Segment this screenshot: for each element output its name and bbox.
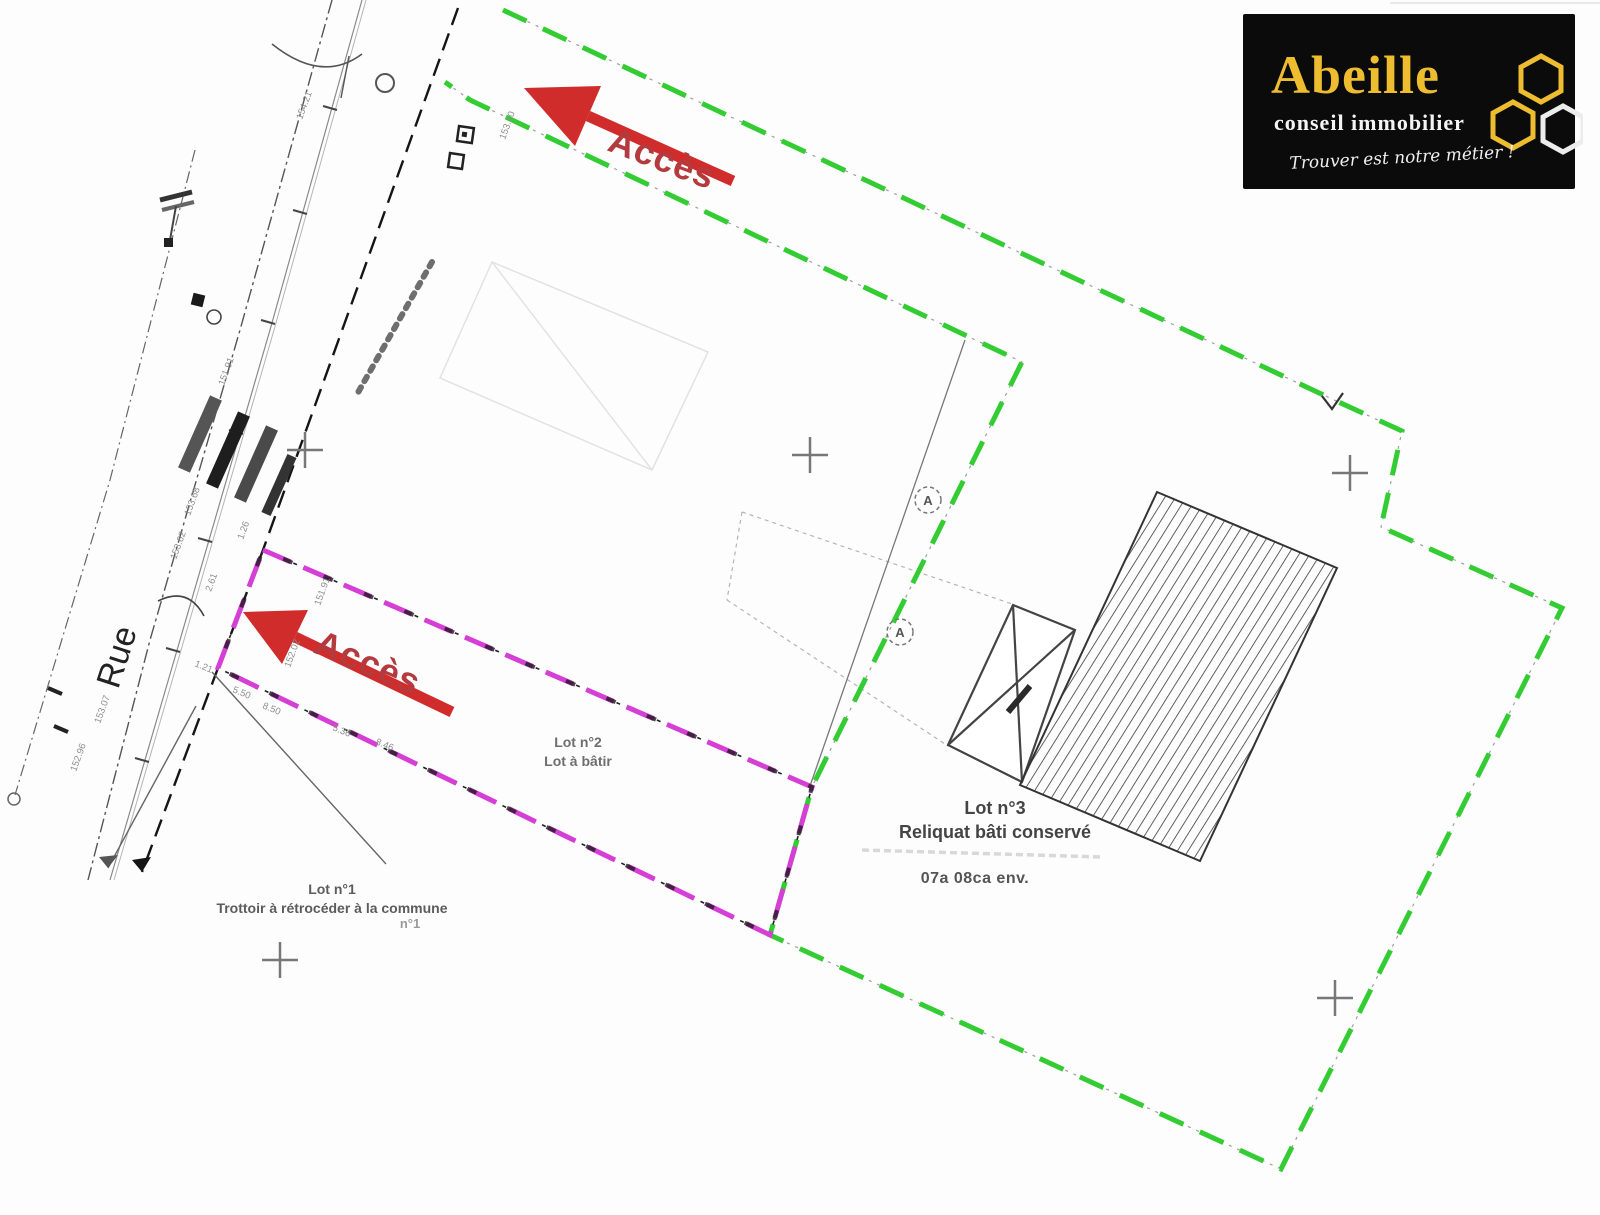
measurement-label: 5.50: [231, 685, 252, 702]
boundary-notch: [1322, 393, 1343, 409]
measurement-label: 153.07: [92, 694, 112, 725]
cable-marker-squares: [448, 126, 474, 169]
faint-old-building: [440, 262, 708, 470]
measurement-label: 151.91: [216, 356, 236, 387]
road-boundary-dashed: [132, 8, 458, 872]
lot1-note: n°1: [380, 915, 440, 933]
lot3-name: Lot n°3: [840, 796, 1150, 820]
lot1-name: Lot n°1: [182, 880, 482, 899]
measurement-label: 1.21: [193, 659, 214, 676]
hedge-line: [356, 262, 432, 396]
measurement-label: 153.68: [182, 486, 202, 517]
measurement-label: 2.61: [203, 572, 220, 593]
measurement-labels: 153.62153.68151.91154.21153.101.262.611.…: [68, 90, 517, 773]
agency-logo: Abeille conseil immobilier Trouver est n…: [1243, 14, 1575, 189]
street-label: Rue: [89, 621, 144, 692]
measurement-label: 152.96: [68, 742, 88, 773]
boundary-arrowhead: [132, 857, 151, 872]
measurement-label: 5.36: [331, 723, 352, 740]
survey-point-circle: [376, 74, 394, 92]
logo-subtitle-text: conseil immobilier: [1274, 110, 1465, 136]
honeycomb-icon: [1479, 50, 1583, 156]
access-label-bottom: Accès: [309, 622, 427, 703]
lot3-label: Lot n°3 Reliquat bâti conservé: [840, 796, 1150, 845]
access-label-top: Accès: [603, 119, 721, 197]
logo-tagline-text: Trouver est notre métier !: [1243, 140, 1562, 177]
site-plan-page: A A Accès Accès Rue: [0, 0, 1600, 1215]
lot2-description: Lot à bâtir: [498, 752, 658, 771]
lot3-area: 07a 08ca env.: [840, 868, 1110, 890]
street-details: [158, 44, 474, 616]
old-parcel-line: [810, 340, 965, 786]
measurement-label: 1.26: [235, 520, 252, 541]
lot2-name: Lot n°2: [498, 733, 658, 752]
marker-a-2: A: [895, 625, 905, 640]
utility-marker-circle: [207, 310, 221, 324]
struck-text-line: [862, 850, 1102, 857]
utility-marker-square: [191, 293, 206, 308]
marker-a-1: A: [923, 493, 933, 508]
logo-brand-text: Abeille: [1271, 44, 1440, 106]
lot1-label: Lot n°1 Trottoir à rétrocéder à la commu…: [182, 880, 482, 918]
lot2-label: Lot n°2 Lot à bâtir: [498, 733, 658, 771]
measurement-label: 8.50: [261, 701, 282, 718]
lot3-description: Reliquat bâti conservé: [840, 820, 1150, 844]
measurement-label: 151.91: [312, 576, 332, 607]
measurement-label: 154.21: [294, 90, 314, 121]
measurement-label: 153.62: [168, 530, 188, 561]
measurement-label: 8.46: [374, 737, 395, 754]
leader-lines: [108, 672, 386, 868]
